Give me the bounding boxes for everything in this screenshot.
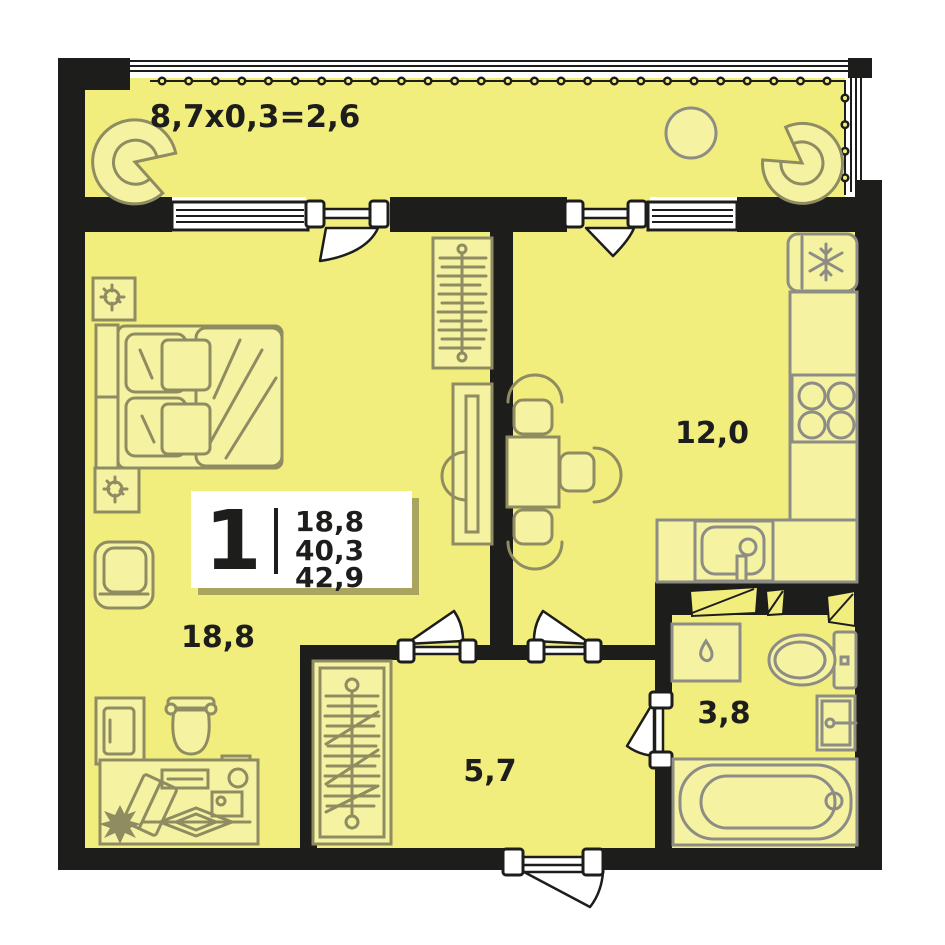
wall-top-right-block — [848, 58, 872, 78]
wardrobe-living — [433, 238, 492, 368]
stats-rooms-count: 1 — [204, 494, 261, 589]
bed — [96, 325, 282, 468]
wall-right — [855, 180, 882, 870]
stats-divider — [274, 508, 278, 574]
living-label: 18,8 — [181, 620, 255, 655]
stats-total-area: 42,9 — [295, 561, 364, 594]
floorplan-page: 1 18,8 40,3 42,9 8,7x0,3=2,6 12,0 18,8 5… — [0, 0, 945, 945]
floor-plan-svg: 1 18,8 40,3 42,9 8,7x0,3=2,6 12,0 18,8 5… — [0, 0, 945, 945]
chair-top — [514, 400, 552, 434]
wall-balcony-2 — [390, 197, 567, 232]
wall-left — [58, 75, 85, 870]
wall-bottom-1 — [58, 848, 505, 870]
nightstand-bottom — [95, 468, 139, 512]
wall-bottom-2 — [602, 848, 882, 870]
entrance-door — [503, 849, 603, 907]
kitchen-table — [507, 437, 559, 507]
stats-box: 1 18,8 40,3 42,9 — [191, 491, 419, 595]
balcony-table — [666, 108, 716, 158]
kitchen-faucet — [737, 556, 746, 581]
chair-right — [560, 453, 594, 491]
balcony-floor — [85, 78, 845, 197]
toilet-tank — [834, 632, 856, 688]
chair-bottom — [514, 510, 552, 544]
kitchen-label: 12,0 — [675, 416, 749, 451]
wall-balcony-1 — [58, 197, 172, 232]
nightstand-top — [93, 278, 135, 320]
balcony-label: 8,7x0,3=2,6 — [150, 99, 361, 135]
armchair — [95, 542, 153, 608]
washing-machine — [672, 624, 740, 681]
hall-wardrobe — [313, 661, 391, 844]
hallway-label: 5,7 — [463, 754, 516, 789]
desk-chair — [173, 710, 209, 754]
bathroom-label: 3,8 — [697, 696, 750, 731]
